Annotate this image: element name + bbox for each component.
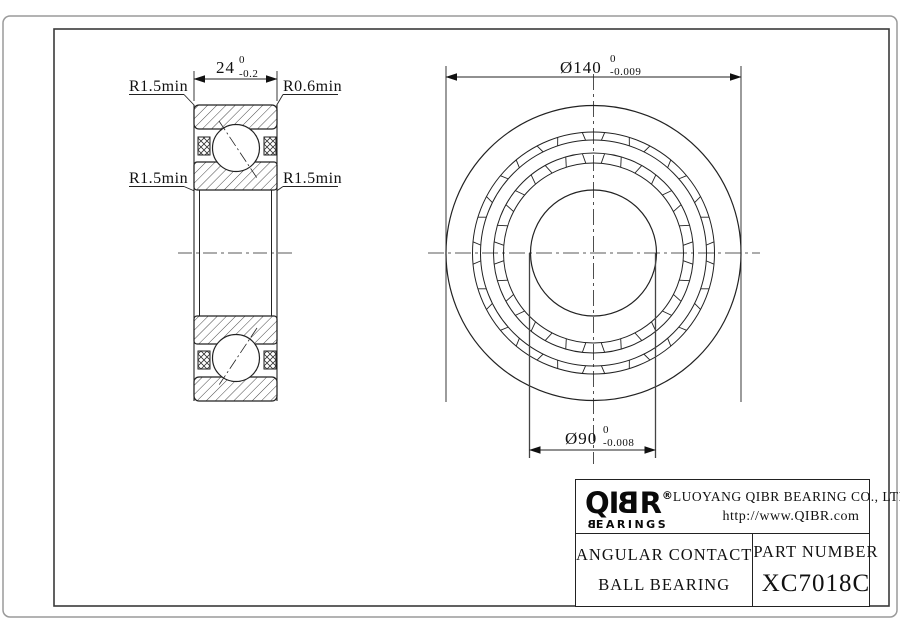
fillet-top-left-text: R1.5min — [129, 78, 188, 95]
ball-bottom-section — [213, 335, 260, 382]
cage-section-bottom-right — [264, 351, 276, 369]
product-type-line1: ANGULAR CONTACT — [576, 545, 752, 565]
company-name: LUOYANG QIBR BEARING CO., LTD — [673, 489, 900, 505]
title-block-detail-row: ANGULAR CONTACT BALL BEARING PART NUMBER… — [576, 534, 869, 606]
od-dim-value: Ø140 — [560, 58, 602, 77]
width-dim-tol-lower: -0.2 — [239, 68, 258, 80]
title-block-header-row: QIBR® BEARINGS LUOYANG QIBR BEARING CO.,… — [576, 480, 869, 534]
width-dim-tol-upper: 0 — [239, 54, 245, 66]
fillet-mid-left-text: R1.5min — [129, 170, 188, 187]
logo-wordmark: QIBR® — [585, 482, 673, 517]
cage-section-top-right — [264, 137, 276, 155]
engineering-drawing-page: 24 0 -0.2 R1.5min R0.6min R1.5min R1.5mi… — [0, 0, 900, 636]
product-type-cell: ANGULAR CONTACT BALL BEARING — [576, 534, 753, 606]
tagline-mirrored-b: B — [585, 518, 596, 531]
title-block: QIBR® BEARINGS LUOYANG QIBR BEARING CO.,… — [575, 479, 870, 607]
logo-text-suffix: R — [640, 486, 661, 520]
od-dim-tol-upper: 0 — [610, 53, 616, 65]
cage-section-bottom-left — [198, 351, 210, 369]
part-number-label: PART NUMBER — [753, 542, 878, 562]
product-type-line2: BALL BEARING — [598, 575, 730, 595]
fillet-mid-right-text: R1.5min — [283, 170, 342, 187]
logo-mirrored-b: B — [618, 490, 639, 517]
part-number-cell: PART NUMBER XC7018C — [753, 534, 878, 606]
company-website: http://www.QIBR.com — [673, 509, 900, 525]
logo-text-prefix: QI — [585, 486, 618, 520]
cage-section-top-left — [198, 137, 210, 155]
od-dim-tol-lower: -0.009 — [610, 66, 641, 78]
fillet-top-right-text: R0.6min — [283, 78, 342, 95]
company-logo: QIBR® BEARINGS — [576, 482, 673, 531]
registered-trademark-symbol: ® — [662, 489, 673, 502]
bore-dim-tol-upper: 0 — [603, 424, 609, 436]
bore-dim-value: Ø90 — [565, 429, 597, 448]
ball-top-section — [213, 125, 260, 172]
width-dim-value: 24 — [216, 58, 235, 77]
bore-dim-tol-lower: -0.008 — [603, 437, 634, 449]
part-number-value: XC7018C — [762, 570, 870, 598]
company-info: LUOYANG QIBR BEARING CO., LTD http://www… — [673, 489, 900, 525]
